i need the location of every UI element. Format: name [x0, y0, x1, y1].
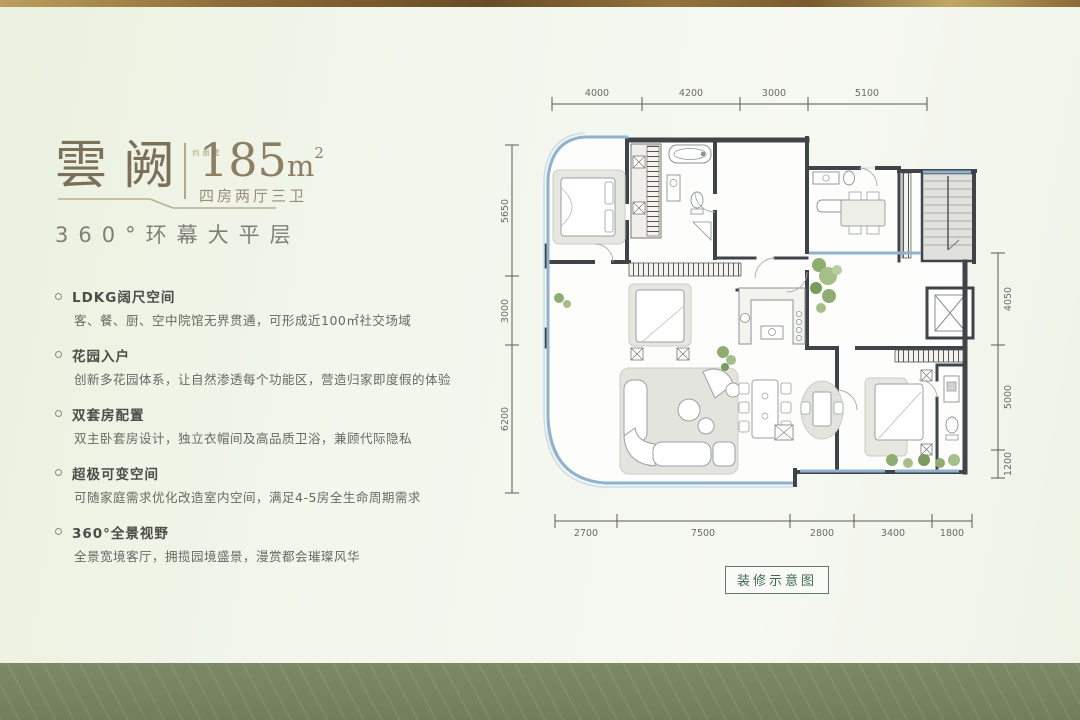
living-room	[620, 368, 740, 474]
floor-drain-box	[775, 425, 793, 440]
feature-title: 超极可变空间	[72, 463, 159, 483]
feature-desc: 客、餐、厨、空中院馆无界贯通，可形成近100㎡社交场域	[55, 313, 475, 330]
floorplan-svg: 4000 4200 3000 5100 5650 3000 6200 4050 …	[497, 80, 1037, 585]
dim-label: 5100	[855, 88, 879, 99]
feature-item: LDKG阔尺空间 客、餐、厨、空中院馆无界贯通，可形成近100㎡社交场域	[55, 286, 475, 330]
feature-title: 双套房配置	[72, 404, 145, 424]
closet-strip	[895, 350, 963, 362]
feature-desc: 全景宽境客厅，拥揽园境盛景，漫赏都会璀璨风华	[55, 549, 475, 566]
dim-label: 3000	[762, 88, 786, 99]
feature-item: 超极可变空间 可随家庭需求优化改造室内空间，满足4-5房全生命周期需求	[55, 463, 475, 507]
feature-desc: 双主卧套房设计，独立衣帽间及高品质卫浴，兼顾代际隐私	[55, 431, 475, 448]
dim-label: 1800	[940, 528, 964, 539]
unit-name: 雲阙	[55, 138, 191, 195]
closet-strip	[629, 263, 741, 276]
dim-label: 5000	[1003, 385, 1014, 409]
area-value: 185m2	[199, 133, 324, 187]
master-bedroom-furniture	[553, 170, 625, 244]
dim-label: 3000	[500, 299, 511, 323]
tagline: 360°环幕大平层	[55, 219, 301, 249]
feature-list: LDKG阔尺空间 客、餐、厨、空中院馆无界贯通，可形成近100㎡社交场域 花园入…	[55, 286, 475, 580]
staircase	[922, 173, 974, 261]
tea-room	[801, 381, 843, 439]
feature-item: 双套房配置 双主卧套房设计，独立衣帽间及高品质卫浴，兼顾代际隐私	[55, 404, 475, 448]
area-unit: m	[287, 149, 315, 183]
stair-hatch-strip	[902, 173, 911, 258]
dim-label: 4200	[679, 88, 703, 99]
top-accent-bar	[0, 0, 1080, 7]
area-superscript: 2	[314, 144, 324, 162]
feature-desc: 可随家庭需求优化改造室内空间，满足4-5房全生命周期需求	[55, 490, 475, 507]
area-number: 185	[199, 133, 287, 187]
bullet-dot-icon	[55, 351, 62, 358]
dim-label: 1200	[1003, 452, 1014, 476]
feature-desc: 创新多花园体系，让自然渗透每个功能区，营造归家即度假的体验	[55, 372, 475, 389]
master-closet	[631, 144, 661, 238]
feature-title: 360°全景视野	[72, 522, 169, 542]
dim-label: 4000	[585, 88, 609, 99]
dim-label: 2700	[574, 528, 598, 539]
bullet-dot-icon	[55, 469, 62, 476]
feature-item: 花园入户 创新多花园体系，让自然渗透每个功能区，营造归家即度假的体验	[55, 345, 475, 389]
plan-caption: 装修示意图	[725, 566, 829, 594]
dim-label: 5650	[500, 199, 511, 223]
dim-label: 7500	[691, 528, 715, 539]
area-divider-line	[184, 143, 186, 199]
bullet-dot-icon	[55, 528, 62, 535]
dim-label: 6200	[500, 407, 511, 431]
title-divider-zigzag	[55, 194, 285, 212]
dim-label: 2800	[810, 528, 834, 539]
bullet-dot-icon	[55, 293, 62, 300]
bullet-dot-icon	[55, 410, 62, 417]
dim-label: 3400	[881, 528, 905, 539]
feature-title: LDKG阔尺空间	[72, 286, 175, 306]
bottom-sage-band	[0, 663, 1080, 720]
dim-label: 4050	[1003, 287, 1014, 311]
feature-title: 花园入户	[72, 345, 130, 365]
feature-item: 360°全景视野 全景宽境客厅，拥揽园境盛景，漫赏都会璀璨风华	[55, 522, 475, 566]
